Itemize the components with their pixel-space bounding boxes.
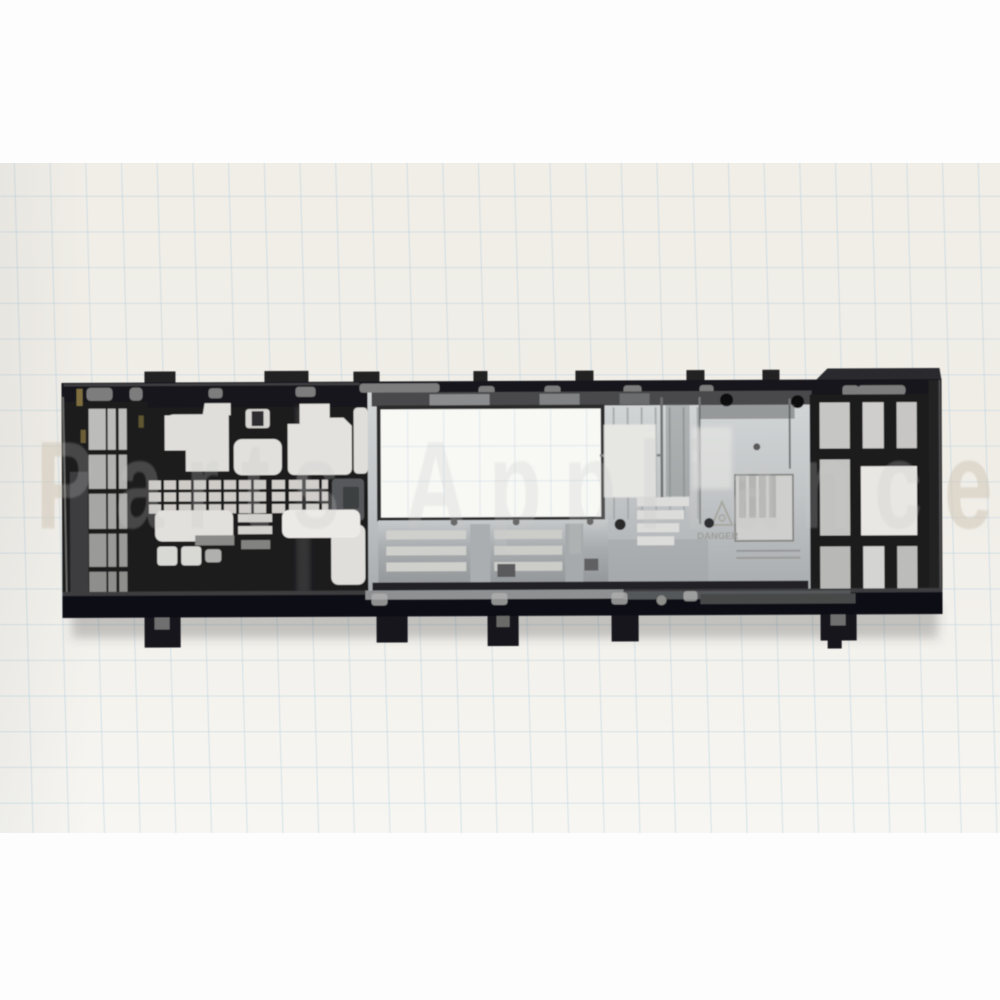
svg-text:Parts Appliance: Parts Appliance xyxy=(36,416,1000,555)
